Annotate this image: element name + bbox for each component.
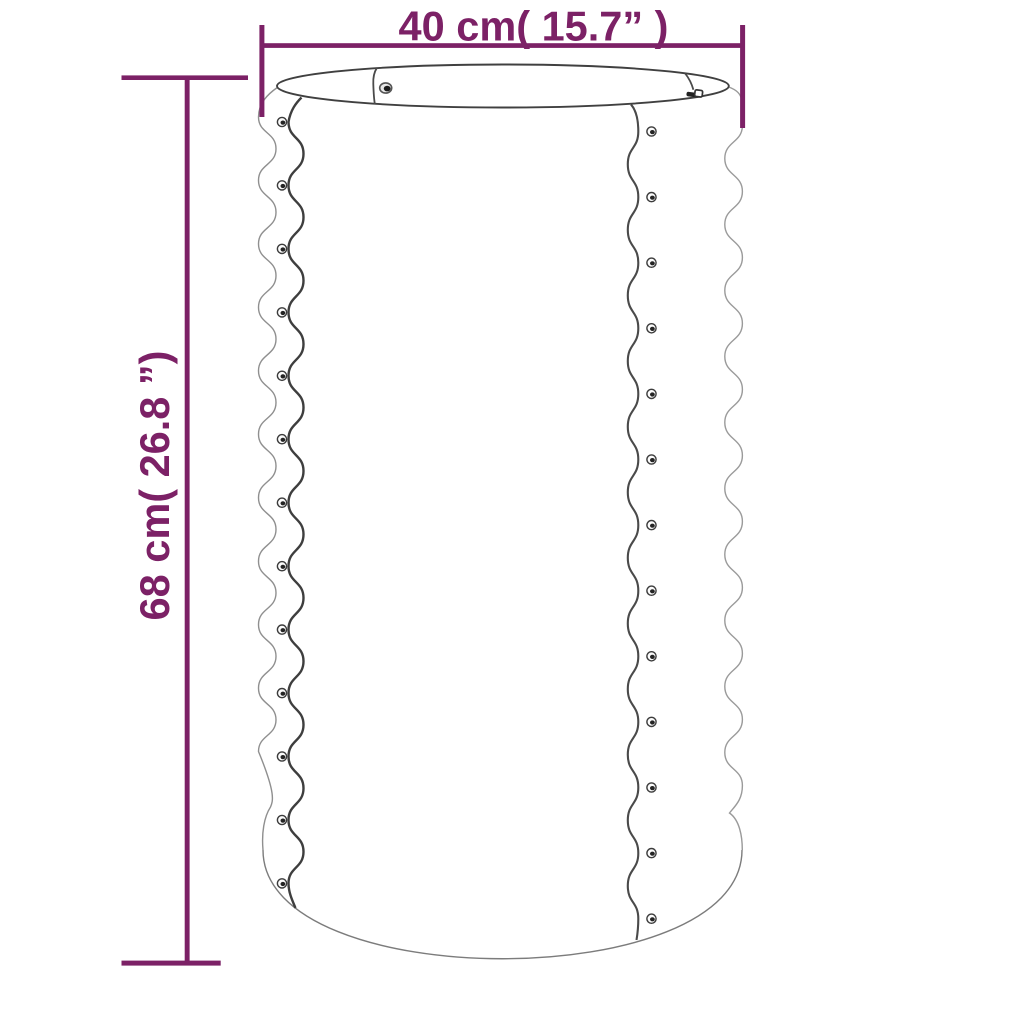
svg-text:68 cm( 26.8 ”): 68 cm( 26.8 ”) (131, 351, 178, 621)
svg-text:40 cm( 15.7” ): 40 cm( 15.7” ) (399, 3, 669, 50)
